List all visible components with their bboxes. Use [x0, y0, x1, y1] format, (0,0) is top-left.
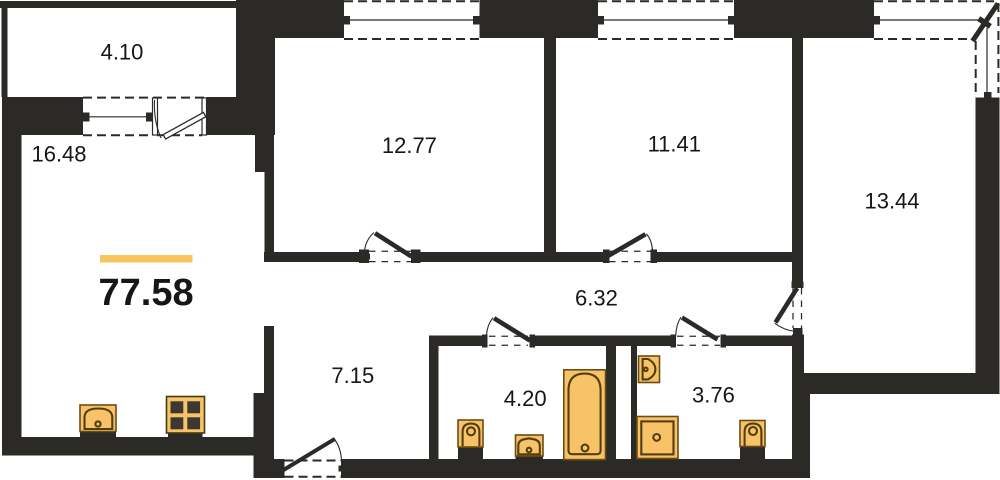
svg-text:7.15: 7.15: [331, 363, 374, 388]
svg-text:16.48: 16.48: [31, 141, 86, 166]
svg-text:12.77: 12.77: [382, 133, 437, 158]
svg-text:3.76: 3.76: [692, 382, 735, 407]
svg-text:4.20: 4.20: [504, 386, 547, 411]
svg-text:13.44: 13.44: [864, 188, 919, 213]
svg-text:11.41: 11.41: [648, 132, 701, 157]
svg-text:77.58: 77.58: [99, 272, 194, 314]
svg-text:4.10: 4.10: [101, 40, 144, 65]
svg-text:6.32: 6.32: [575, 285, 618, 310]
